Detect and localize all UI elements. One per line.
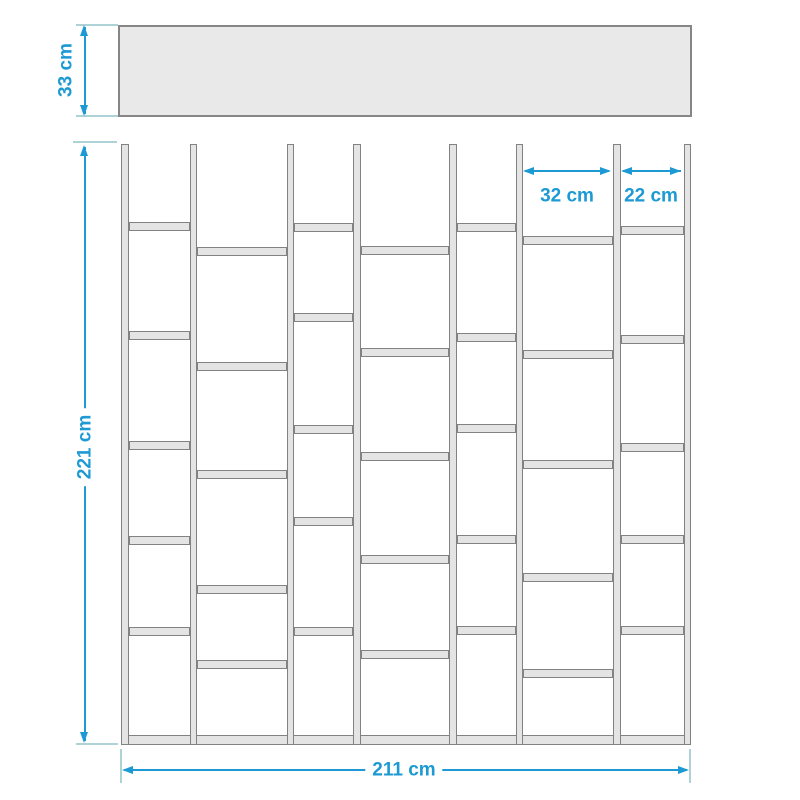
shelf-board [361,452,450,461]
shelf-board [457,535,516,544]
dimension-line-wide-bay [525,170,609,172]
shelf-board [523,460,613,469]
arrowhead-width-left [122,766,133,774]
shelf-board [457,626,516,635]
dimension-label-height: 221 cm [74,408,97,486]
dimension-label-narrow-bay: 22 cm [624,187,678,206]
shelf-board [361,650,450,659]
shelf-board [523,350,613,359]
shelf-board [621,626,684,635]
arrowhead-wide-bay-left [523,167,534,175]
arrowhead-height-bottom [80,732,88,743]
shelf-post [684,144,692,745]
dimension-label-wide-bay: 32 cm [540,187,594,206]
shelf-board [294,425,353,434]
shelf-post [449,144,457,745]
shelf-board [294,313,353,322]
shelf-board [457,424,516,433]
shelf-board [129,331,190,340]
arrowhead-height-top [80,145,88,156]
extension-line-height-top [73,141,117,143]
shelf-post [613,144,621,745]
shelf-post [121,144,129,745]
arrowhead-narrow-bay-left [621,167,632,175]
top-panel-depth-view [118,25,692,117]
arrowhead-wide-bay-right [600,167,611,175]
shelf-board [129,222,190,231]
shelf-board [361,348,450,357]
shelf-board [197,362,287,371]
shelf-board [129,441,190,450]
shelf-post [353,144,361,745]
dimension-label-depth: 33 cm [57,43,76,97]
shelf-post [516,144,524,745]
shelf-board [129,536,190,545]
shelf-board [523,669,613,678]
shelf-board [361,246,450,255]
shelf-board [523,573,613,582]
shelf-board [197,247,287,256]
shelf-board [621,443,684,452]
shelf-board [621,335,684,344]
extension-line-width-right [689,749,691,783]
dimension-line-depth [84,27,86,114]
arrowhead-width-right [678,766,689,774]
bookshelf-front-view [121,144,691,745]
shelf-board [523,236,613,245]
arrowhead-depth-bottom [80,105,88,116]
shelf-board [621,535,684,544]
shelf-board [457,333,516,342]
shelf-board [294,223,353,232]
shelf-post [190,144,198,745]
dimension-label-width: 211 cm [365,759,442,782]
shelf-board [197,470,287,479]
shelf-board [197,660,287,669]
arrowhead-depth-top [80,25,88,36]
extension-line-height-bottom [76,743,118,745]
shelf-post [287,144,295,745]
shelf-board [294,627,353,636]
shelf-board [361,555,450,564]
arrowhead-narrow-bay-right [670,167,681,175]
shelf-board [294,517,353,526]
bottom-board [121,735,691,745]
shelf-board [197,585,287,594]
shelf-board [457,223,516,232]
shelf-board [129,627,190,636]
furniture-dimension-diagram: 33 cm 221 cm 32 cm 22 cm 211 cm [0,0,800,800]
shelf-board [621,226,684,235]
